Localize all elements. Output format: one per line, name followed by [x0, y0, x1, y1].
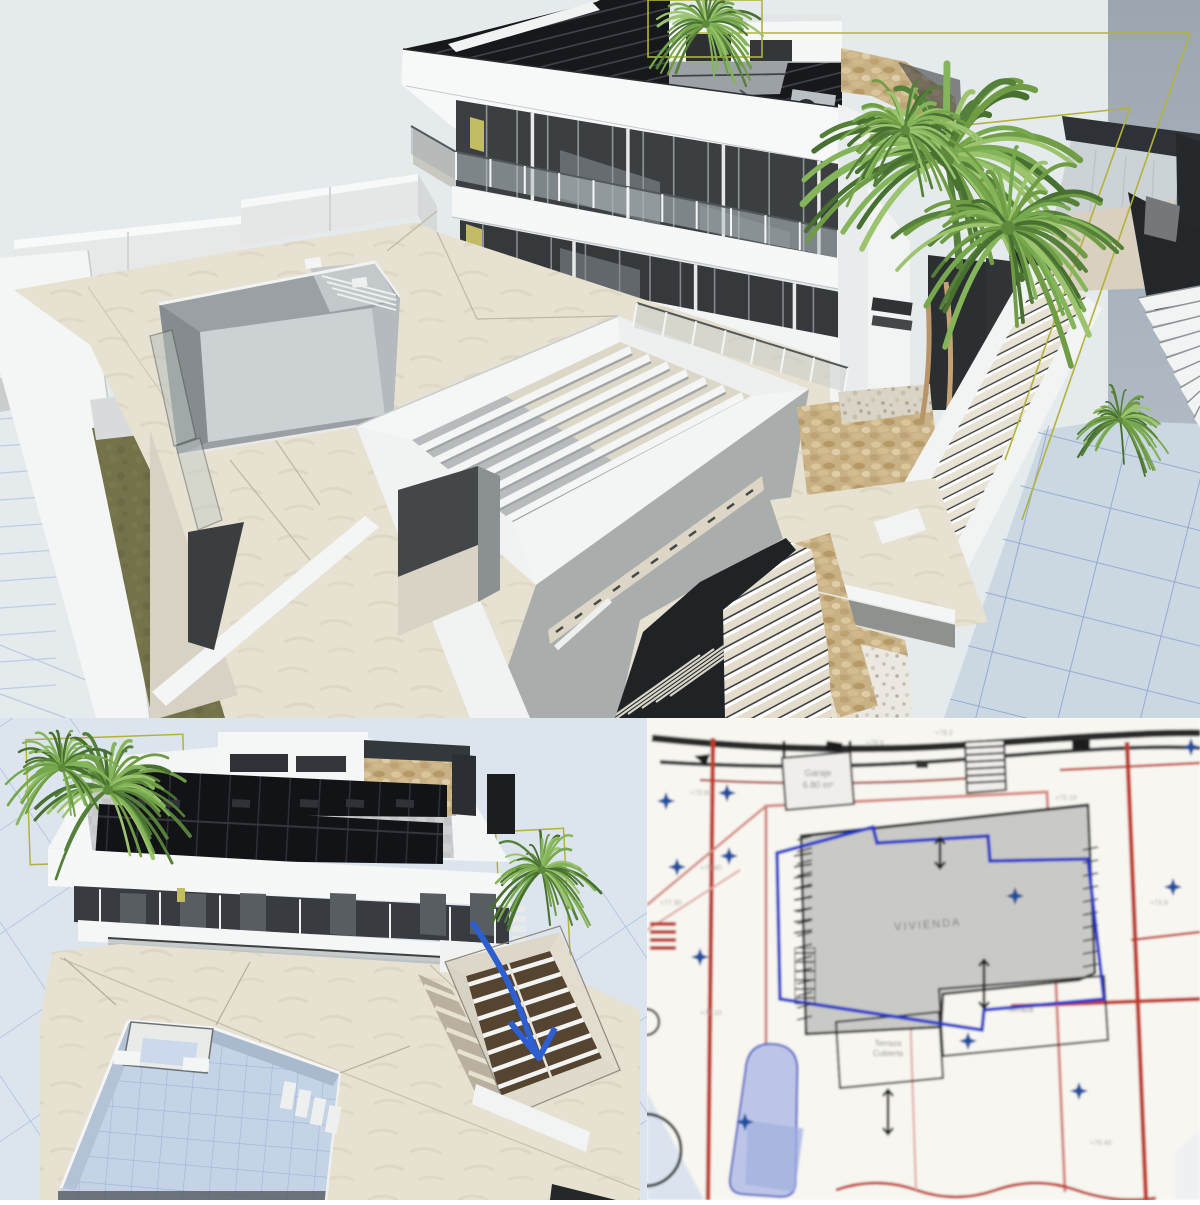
- svg-text:Cubierta: Cubierta: [873, 1049, 904, 1058]
- svg-text:+78.2: +78.2: [935, 730, 953, 737]
- svg-text:6.80 m²: 6.80 m²: [803, 780, 834, 790]
- svg-text:+72.10: +72.10: [700, 1010, 722, 1017]
- svg-text:+70.40: +70.40: [1090, 1140, 1112, 1147]
- svg-text:Garaje: Garaje: [804, 768, 831, 778]
- svg-text:+75.10: +75.10: [1055, 795, 1077, 802]
- svg-text:+75.40: +75.40: [700, 865, 722, 872]
- svg-text:+73.9: +73.9: [1150, 900, 1168, 907]
- svg-text:+77.90: +77.90: [660, 900, 682, 907]
- svg-text:+78.6: +78.6: [866, 740, 884, 747]
- svg-text:Terraza: Terraza: [875, 1039, 902, 1048]
- svg-text:+73.60: +73.60: [690, 790, 712, 797]
